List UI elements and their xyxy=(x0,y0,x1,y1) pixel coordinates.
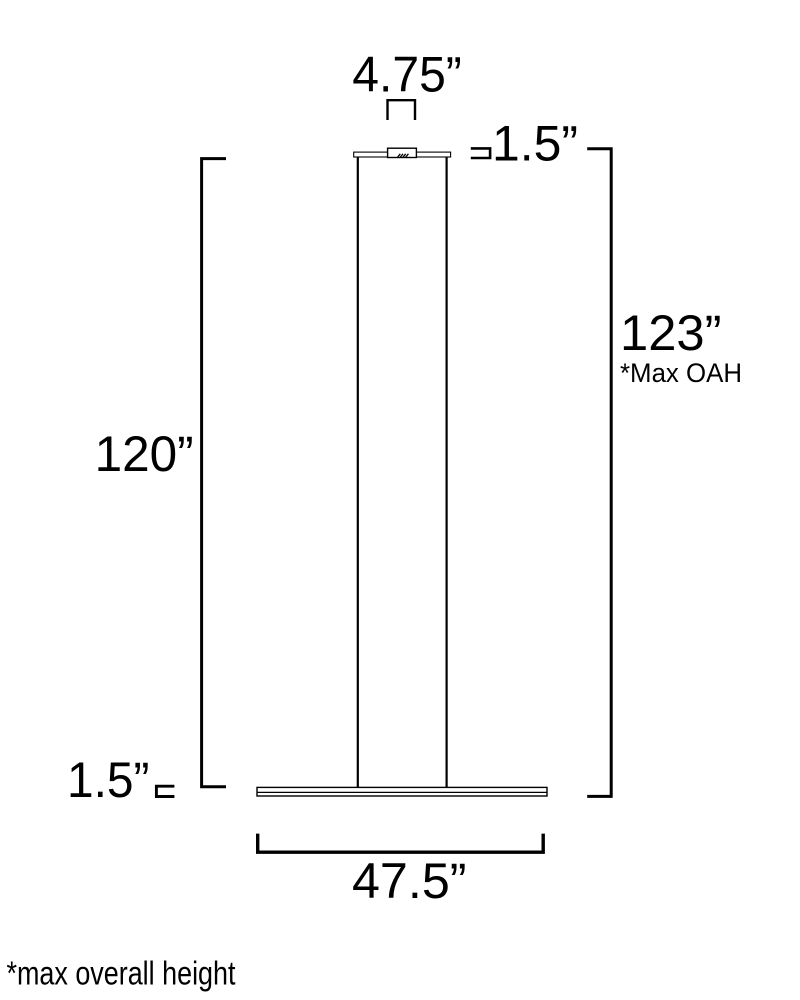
svg-text:*max overall height: *max overall height xyxy=(7,954,236,991)
svg-text:47.5”: 47.5” xyxy=(352,853,467,909)
svg-text:4.75”: 4.75” xyxy=(352,47,462,103)
svg-text:1.5”: 1.5” xyxy=(67,752,150,808)
svg-text:123”: 123” xyxy=(620,305,722,361)
svg-text:120”: 120” xyxy=(95,426,194,482)
svg-text:1.5”: 1.5” xyxy=(492,116,578,172)
svg-text:*Max OAH: *Max OAH xyxy=(620,358,742,388)
